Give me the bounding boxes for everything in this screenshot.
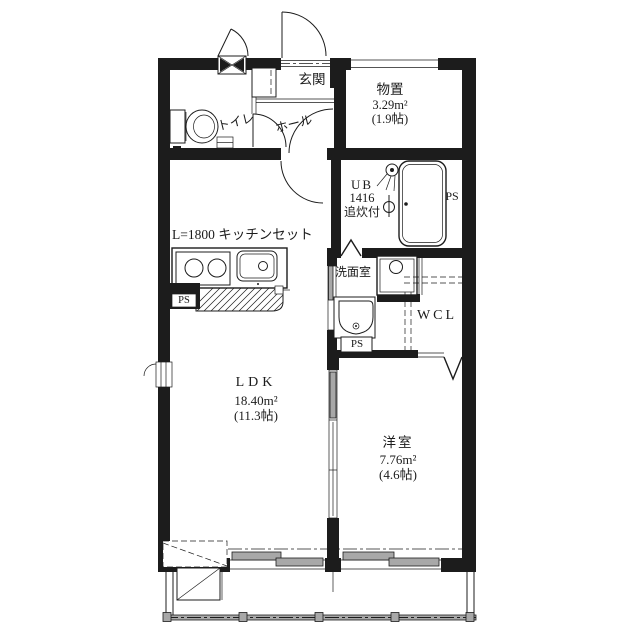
ldk-area: 18.40m²	[216, 394, 296, 408]
meter-box-door-arc	[218, 29, 248, 56]
storage-label: 物置	[350, 83, 430, 97]
kitchen-label: L=1800 キッチンセット	[172, 228, 322, 242]
bath-label-size: 1416	[332, 192, 392, 205]
kitchen-counter	[172, 248, 287, 288]
ldk-tatami: (11.3帖)	[216, 409, 296, 423]
bedroom-window	[341, 552, 441, 569]
floorplan-canvas: 玄関 物置 3.29m² (1.9帖) トイレ ホール UB 1416 追炊付 …	[0, 0, 640, 640]
floorplan-graphics	[0, 0, 640, 640]
entrance-label: 玄関	[286, 73, 338, 87]
overhead-storage-dashed	[163, 541, 227, 567]
bath-label-reheat: 追炊付	[332, 206, 392, 219]
washroom-label: 洗面室	[329, 266, 377, 279]
bedroom-area: 7.76m²	[358, 453, 438, 467]
bathtub	[399, 161, 446, 246]
washroom-ps-label: PS	[343, 339, 371, 351]
storage-area: 3.29m²	[350, 99, 430, 112]
kitchen-counter-hatch	[186, 285, 307, 315]
storage-tatami: (1.9帖)	[350, 113, 430, 126]
ldk-label: LDK	[216, 376, 296, 391]
ac-unit-pad	[177, 568, 220, 600]
washing-machine	[377, 256, 417, 295]
wcl-label: WCL	[410, 309, 464, 324]
bath-ps-label: PS	[440, 190, 464, 203]
bath-folding-door	[341, 240, 361, 256]
vanity-sink	[334, 297, 375, 338]
wcl-folding-door	[444, 357, 462, 379]
shoe-cabinet	[252, 68, 276, 97]
bedroom-tatami: (4.6帖)	[358, 468, 438, 482]
meter-box	[218, 56, 246, 74]
bedroom-label: 洋室	[358, 436, 438, 450]
bath-label-ub: UB	[332, 178, 392, 192]
side-window	[144, 362, 172, 387]
kitchen-ps-label: PS	[172, 295, 196, 306]
entrance-door-arc	[282, 12, 326, 58]
room-partition-sliding-door	[329, 370, 337, 518]
